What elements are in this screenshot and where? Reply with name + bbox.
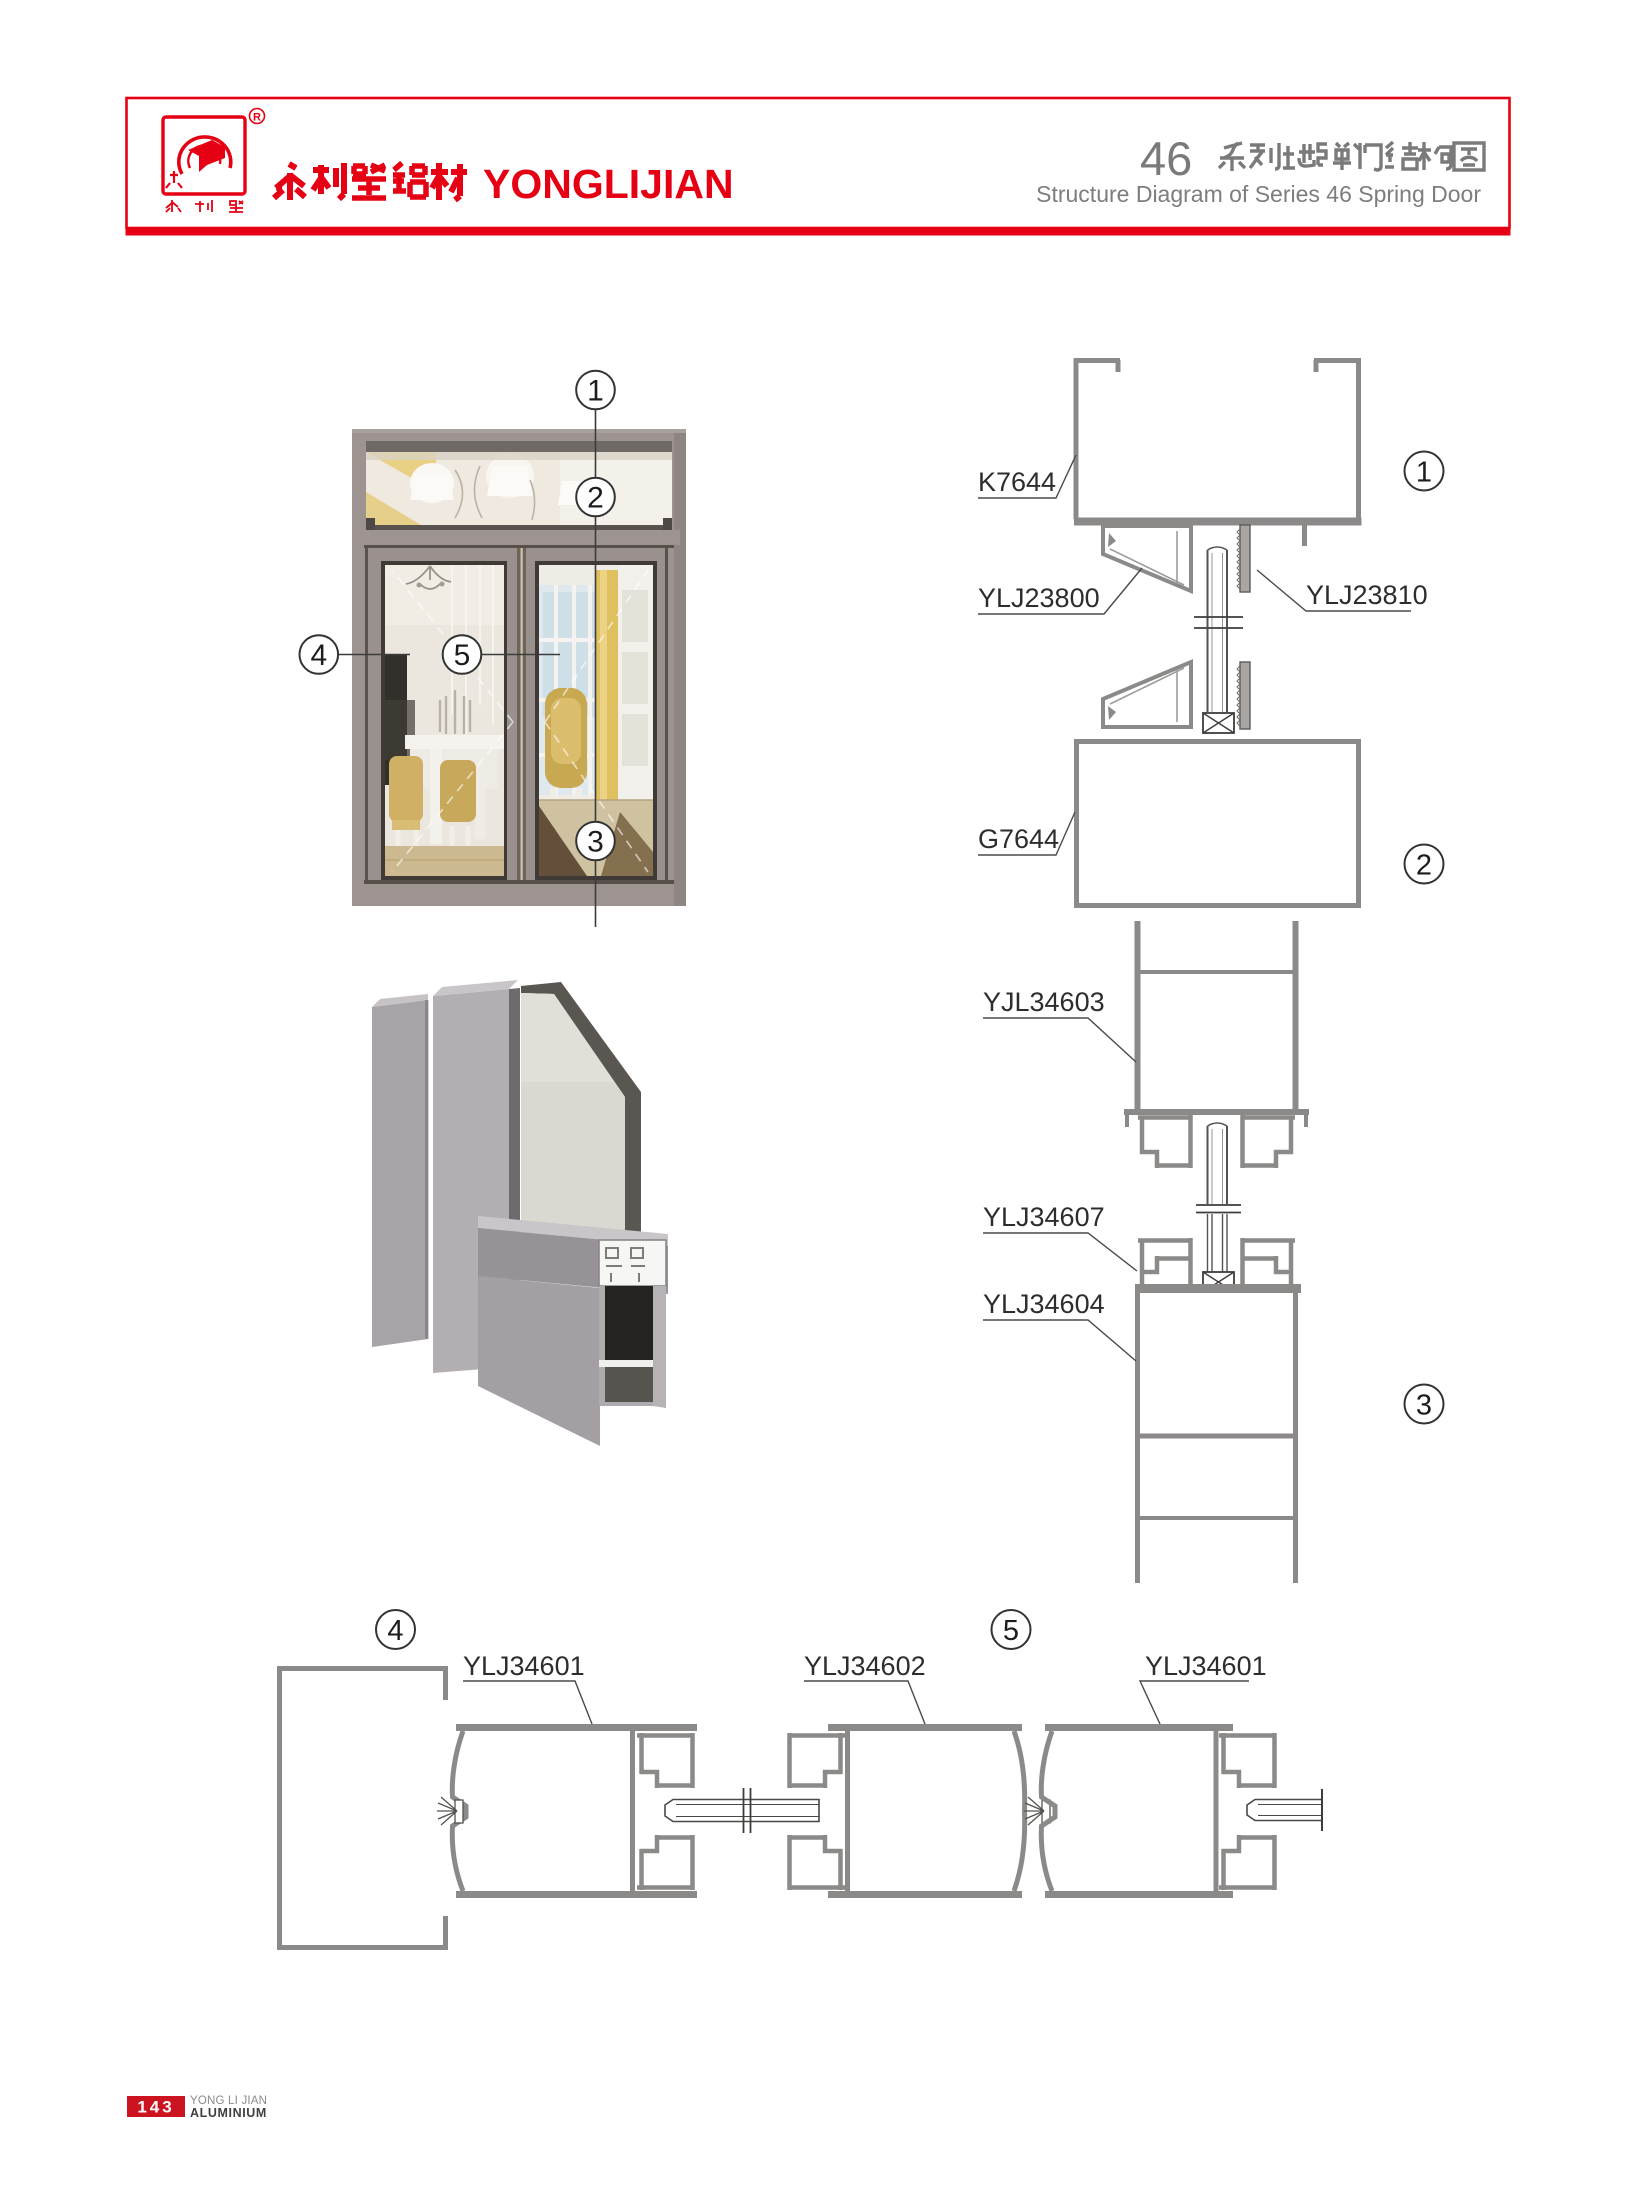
svg-text:5: 5: [454, 639, 471, 672]
svg-text:2: 2: [1416, 850, 1432, 882]
svg-text:46: 46: [1140, 132, 1192, 185]
svg-text:1: 1: [587, 375, 604, 408]
svg-text:YJL34603: YJL34603: [983, 987, 1105, 1017]
svg-text:1: 1: [1416, 457, 1432, 489]
svg-text:4: 4: [387, 1615, 403, 1647]
svg-text:YLJ34601: YLJ34601: [1145, 1651, 1267, 1681]
svg-text:YLJ23810: YLJ23810: [1306, 580, 1428, 610]
svg-text:YLJ23800: YLJ23800: [978, 583, 1100, 613]
svg-text:YLJ34604: YLJ34604: [983, 1289, 1105, 1319]
svg-text:4: 4: [310, 639, 327, 672]
svg-text:5: 5: [1003, 1615, 1019, 1647]
svg-text:YONGLIJIAN: YONGLIJIAN: [483, 161, 734, 207]
svg-text:K7644: K7644: [978, 467, 1056, 497]
svg-text:YLJ34607: YLJ34607: [983, 1202, 1105, 1232]
svg-text:143: 143: [137, 2098, 174, 2117]
svg-text:G7644: G7644: [978, 824, 1059, 854]
svg-text:3: 3: [1416, 1390, 1432, 1422]
svg-text:2: 2: [587, 482, 604, 515]
svg-text:ALUMINIUM: ALUMINIUM: [190, 2106, 267, 2120]
svg-text:R: R: [253, 112, 261, 124]
svg-text:Structure Diagram of Series 46: Structure Diagram of Series 46 Spring Do…: [1036, 181, 1481, 207]
svg-text:YLJ34601: YLJ34601: [463, 1651, 585, 1681]
svg-text:3: 3: [587, 826, 604, 859]
svg-text:YLJ34602: YLJ34602: [804, 1651, 926, 1681]
